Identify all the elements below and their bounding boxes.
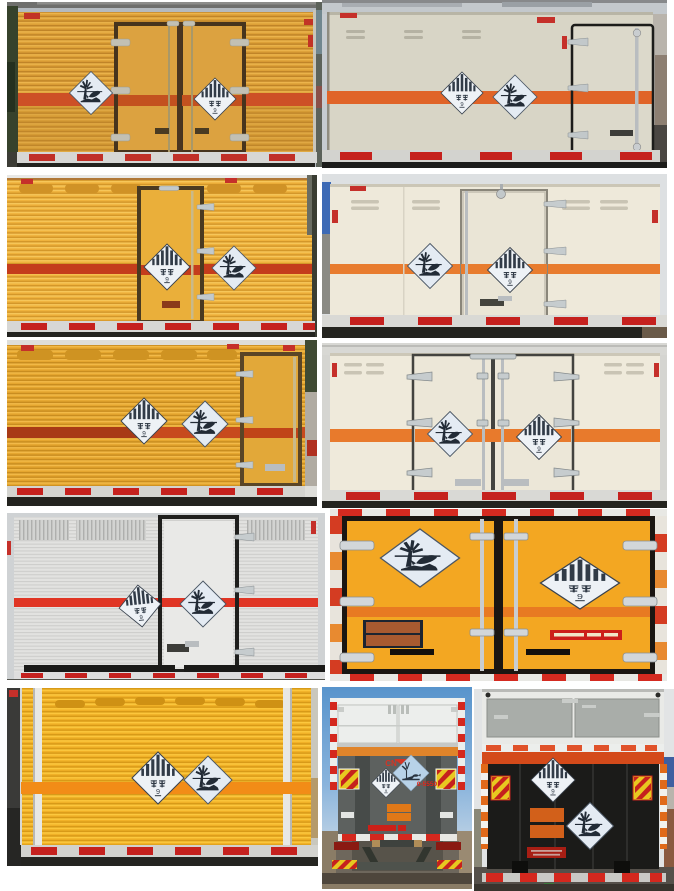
svg-text:0-5550: 0-5550	[417, 781, 438, 788]
svg-text:CN: CN	[385, 759, 397, 768]
